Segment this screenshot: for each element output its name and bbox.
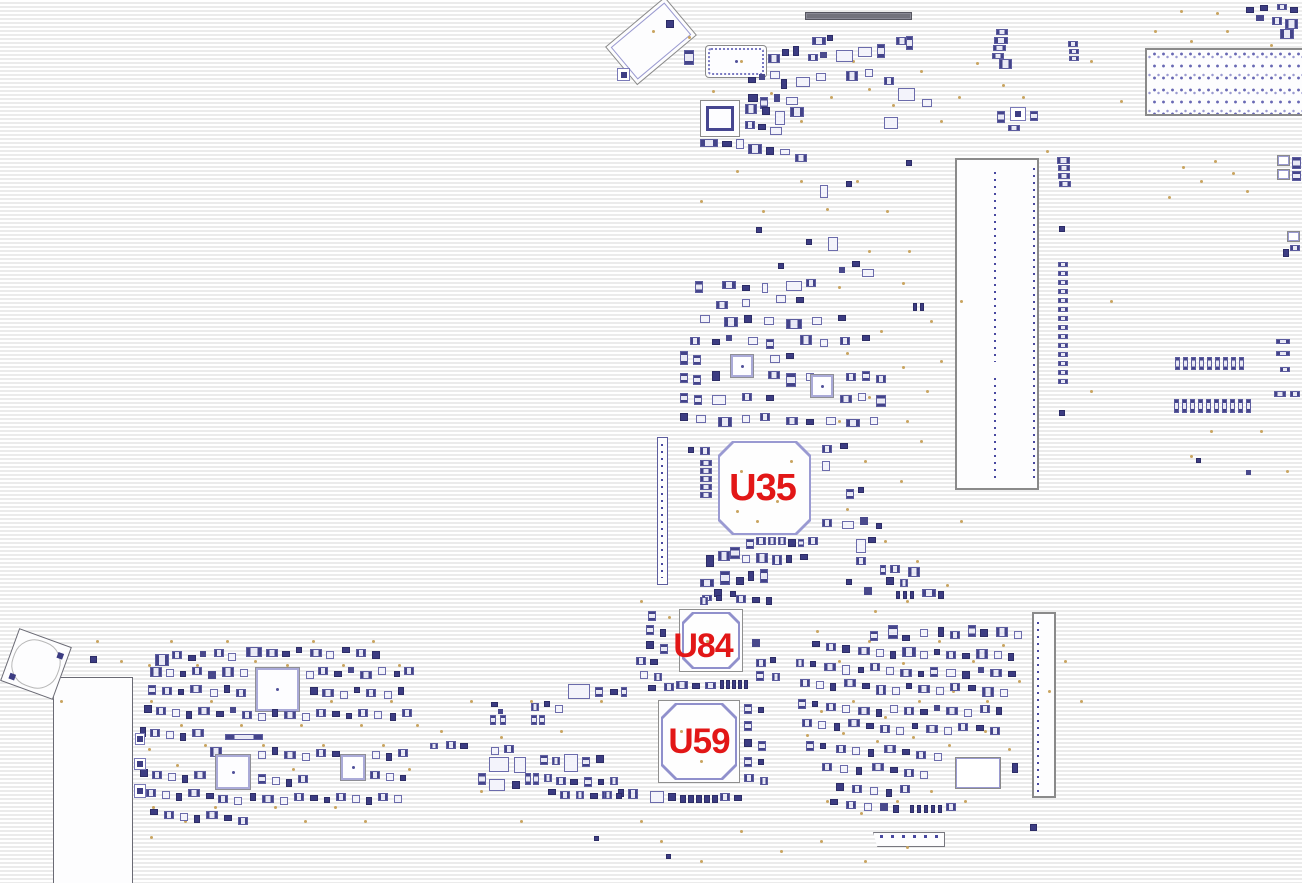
component: [1008, 671, 1016, 677]
component: [936, 687, 944, 695]
component: [906, 36, 913, 50]
component: [346, 713, 352, 719]
component: [768, 371, 780, 379]
component: [870, 663, 880, 671]
component: [712, 395, 726, 405]
component: [489, 779, 505, 791]
component: [240, 669, 248, 677]
component: [946, 707, 958, 715]
component: [877, 44, 885, 58]
component: [712, 795, 718, 803]
component: [856, 557, 866, 565]
components-layer: [0, 0, 1302, 883]
component: [958, 723, 968, 731]
component: [216, 711, 224, 717]
component: [1277, 4, 1287, 10]
component: [374, 711, 382, 719]
component: [712, 339, 720, 345]
component: [621, 687, 627, 697]
component: [962, 653, 970, 659]
component: [838, 315, 846, 321]
component: [722, 281, 736, 289]
component: [192, 729, 204, 737]
component: [512, 781, 520, 789]
component: [1290, 245, 1300, 251]
component: [756, 553, 768, 563]
component: [556, 777, 566, 785]
component: [820, 743, 826, 749]
component: [946, 803, 956, 811]
component: [876, 709, 882, 717]
component: [844, 679, 856, 687]
component: [404, 667, 414, 675]
component: [176, 793, 182, 801]
component: [884, 745, 896, 753]
component: [150, 809, 158, 815]
component: [1198, 399, 1203, 413]
component: [738, 680, 742, 689]
component: [886, 667, 894, 675]
component: [150, 667, 162, 677]
component: [1290, 391, 1300, 397]
component: [595, 687, 603, 697]
component: [306, 671, 314, 679]
component: [700, 447, 710, 455]
component: [354, 687, 360, 693]
component: [758, 759, 764, 765]
component: [1030, 111, 1038, 121]
component: [826, 417, 836, 425]
component: [744, 721, 752, 731]
component: [856, 767, 862, 775]
component: [650, 791, 664, 803]
component: [744, 774, 754, 782]
component: [168, 773, 176, 781]
component: [680, 351, 688, 365]
component: [822, 445, 832, 453]
component: [880, 565, 886, 575]
component: [134, 784, 146, 798]
component: [156, 707, 166, 715]
component: [842, 645, 850, 653]
component: [839, 267, 845, 273]
component: [872, 763, 884, 771]
component: [868, 749, 874, 757]
component: [680, 393, 688, 403]
component: [836, 783, 844, 791]
component: [802, 719, 812, 727]
component: [868, 537, 876, 543]
component: [756, 659, 766, 667]
component: [912, 723, 918, 729]
component: [968, 625, 976, 637]
component: [862, 269, 874, 277]
component: [720, 571, 730, 585]
component: [318, 667, 328, 675]
component: [584, 777, 592, 787]
component: [180, 813, 188, 821]
component: [768, 537, 776, 545]
component: [848, 719, 860, 727]
component: [310, 687, 318, 695]
component: [790, 107, 804, 117]
component: [745, 104, 757, 114]
component: [980, 705, 990, 713]
component: [782, 49, 789, 56]
component: [778, 263, 784, 269]
component: [920, 651, 928, 659]
component: [934, 649, 940, 655]
component: [302, 713, 310, 721]
component: [1215, 357, 1220, 370]
component: [146, 789, 156, 797]
component: [594, 836, 599, 841]
component: [90, 656, 97, 663]
component: [695, 281, 703, 293]
component: [826, 703, 836, 711]
component: [870, 417, 878, 425]
component: [504, 745, 514, 753]
component: [186, 711, 192, 719]
component: [222, 667, 234, 677]
component: [172, 709, 180, 717]
component: [913, 303, 917, 311]
component: [1069, 49, 1079, 54]
component: [148, 685, 156, 695]
component: [846, 71, 858, 81]
component: [880, 725, 890, 733]
component: [816, 681, 824, 689]
component: [1222, 399, 1227, 413]
component: [1246, 470, 1251, 475]
component: [846, 419, 860, 427]
component: [888, 625, 898, 639]
component: [806, 419, 814, 425]
component: [852, 785, 862, 793]
component: [795, 154, 807, 162]
component: [298, 775, 308, 783]
component: [864, 587, 872, 595]
component: [1256, 15, 1264, 21]
component: [242, 711, 252, 719]
component: [858, 487, 864, 493]
component: [808, 537, 818, 545]
component: [1058, 165, 1070, 171]
component: [716, 301, 728, 309]
component: [224, 815, 232, 821]
component: [688, 447, 694, 453]
component: [1230, 399, 1235, 413]
component: [680, 795, 686, 803]
component: [796, 77, 810, 87]
component: [704, 795, 710, 803]
component: [284, 751, 296, 759]
component: [893, 805, 899, 813]
component: [999, 59, 1012, 69]
component: [208, 671, 216, 679]
component: [798, 539, 804, 547]
component: [846, 373, 856, 381]
component: [155, 654, 169, 666]
component: [760, 569, 768, 583]
component: [164, 811, 174, 819]
component: [214, 649, 224, 657]
component: [1058, 298, 1068, 303]
component: [726, 680, 730, 689]
component: [734, 795, 742, 801]
component: [262, 795, 274, 803]
component: [812, 317, 822, 325]
component: [178, 689, 184, 695]
component: [400, 775, 406, 781]
component: [590, 793, 598, 799]
component: [800, 554, 808, 560]
component: [764, 317, 774, 325]
component: [668, 793, 676, 801]
component: [1058, 361, 1068, 366]
component: [342, 647, 350, 653]
component: [144, 705, 152, 713]
component: [858, 667, 864, 673]
component: [258, 713, 266, 721]
component: [962, 671, 970, 679]
component: [340, 691, 348, 699]
component: [840, 443, 848, 449]
component: [152, 771, 162, 779]
component: [918, 671, 924, 677]
component: [1057, 157, 1070, 164]
component: [775, 111, 785, 125]
component: [250, 793, 256, 801]
component: [1190, 399, 1195, 413]
component: [1292, 157, 1301, 169]
component: [996, 707, 1002, 715]
component: [1012, 763, 1018, 773]
component: [920, 629, 928, 637]
component: [650, 659, 658, 665]
component: [840, 395, 852, 403]
component: [336, 793, 346, 801]
component: [758, 707, 764, 713]
component: [730, 354, 754, 378]
component: [866, 723, 874, 729]
component: [617, 68, 630, 81]
component: [610, 777, 618, 785]
component: [366, 797, 372, 805]
component: [810, 661, 816, 667]
component: [774, 94, 780, 102]
component: [693, 355, 701, 365]
component: [766, 339, 774, 349]
component: [816, 73, 826, 81]
component: [920, 709, 928, 715]
component: [690, 337, 700, 345]
component: [880, 803, 888, 811]
component: [1059, 181, 1071, 187]
component: [931, 805, 935, 813]
component: [1283, 249, 1289, 257]
component: [812, 37, 826, 45]
component: [340, 754, 366, 781]
component: [286, 779, 292, 787]
component: [938, 627, 944, 637]
component: [294, 793, 304, 801]
component: [1274, 391, 1286, 397]
component: [706, 555, 714, 567]
component: [796, 297, 804, 303]
component: [772, 673, 780, 681]
component: [886, 789, 892, 797]
component: [900, 785, 910, 793]
component: [820, 339, 828, 347]
component: [890, 565, 900, 573]
component: [810, 374, 834, 398]
component: [378, 793, 388, 801]
component: [826, 643, 836, 651]
component: [688, 795, 694, 803]
component: [946, 669, 956, 677]
component: [378, 667, 386, 675]
component: [531, 703, 539, 711]
component: [793, 46, 799, 56]
component: [722, 141, 732, 147]
component: [990, 727, 1000, 735]
component: [490, 715, 496, 725]
component: [194, 815, 200, 823]
component: [736, 577, 744, 585]
component: [806, 741, 814, 751]
component: [284, 711, 296, 719]
component: [752, 639, 760, 647]
component: [166, 731, 174, 739]
component: [696, 795, 702, 803]
component: [786, 319, 802, 329]
component: [228, 653, 236, 661]
component: [700, 468, 712, 474]
component: [756, 537, 766, 545]
component: [772, 555, 782, 565]
component: [712, 371, 720, 381]
component: [616, 793, 622, 799]
component: [759, 74, 765, 80]
component: [640, 671, 648, 679]
component: [182, 775, 188, 783]
component: [370, 771, 380, 779]
component: [531, 715, 537, 725]
component: [150, 729, 160, 737]
component: [926, 725, 938, 733]
component: [742, 555, 750, 563]
component: [194, 771, 206, 779]
component: [310, 649, 322, 657]
component: [1059, 410, 1065, 416]
component: [876, 649, 884, 657]
component: [904, 769, 914, 777]
component: [1290, 7, 1298, 13]
component: [934, 753, 942, 761]
component: [718, 551, 730, 561]
component: [820, 185, 828, 198]
component: [742, 393, 752, 401]
component: [390, 713, 396, 721]
component: [884, 117, 898, 129]
component: [1058, 307, 1068, 312]
component: [332, 711, 340, 717]
component: [776, 295, 786, 303]
component: [978, 667, 984, 673]
component: [1272, 17, 1282, 25]
component: [190, 685, 202, 693]
component: [348, 667, 354, 673]
component: [840, 765, 848, 773]
component: [1068, 41, 1078, 47]
component: [744, 757, 752, 767]
component: [166, 669, 174, 677]
component: [1058, 370, 1068, 375]
component: [900, 579, 908, 587]
component: [1058, 379, 1068, 384]
component: [162, 791, 170, 799]
component: [1069, 56, 1079, 61]
component: [976, 725, 984, 731]
component: [198, 707, 210, 715]
component: [786, 281, 802, 291]
component: [852, 261, 860, 267]
component: [1285, 19, 1298, 29]
component: [996, 29, 1008, 35]
component: [596, 755, 604, 763]
component: [964, 709, 972, 717]
component: [398, 749, 408, 757]
component: [360, 671, 372, 679]
component: [525, 773, 531, 785]
component: [1058, 280, 1068, 285]
component: [820, 52, 827, 58]
component: [716, 595, 722, 601]
component: [742, 299, 750, 307]
component: [540, 755, 548, 765]
component: [358, 709, 368, 717]
component: [1280, 367, 1290, 372]
component: [692, 683, 700, 689]
component: [324, 797, 330, 803]
component: [352, 795, 360, 803]
component: [862, 371, 870, 381]
component: [255, 667, 300, 712]
component: [700, 139, 718, 147]
component: [705, 682, 716, 689]
component: [902, 647, 916, 657]
component: [1010, 107, 1026, 121]
component: [910, 805, 914, 813]
component: [858, 47, 872, 57]
component: [864, 803, 872, 811]
component: [840, 337, 850, 345]
component: [1175, 357, 1180, 370]
component: [846, 489, 854, 499]
component: [666, 854, 671, 859]
component: [876, 685, 886, 695]
component: [230, 707, 236, 713]
component: [756, 227, 762, 233]
component: [302, 753, 310, 761]
component: [1280, 29, 1294, 39]
component: [910, 591, 914, 599]
component: [758, 124, 766, 130]
component: [366, 689, 376, 697]
component: [1058, 173, 1070, 179]
component: [748, 94, 758, 102]
